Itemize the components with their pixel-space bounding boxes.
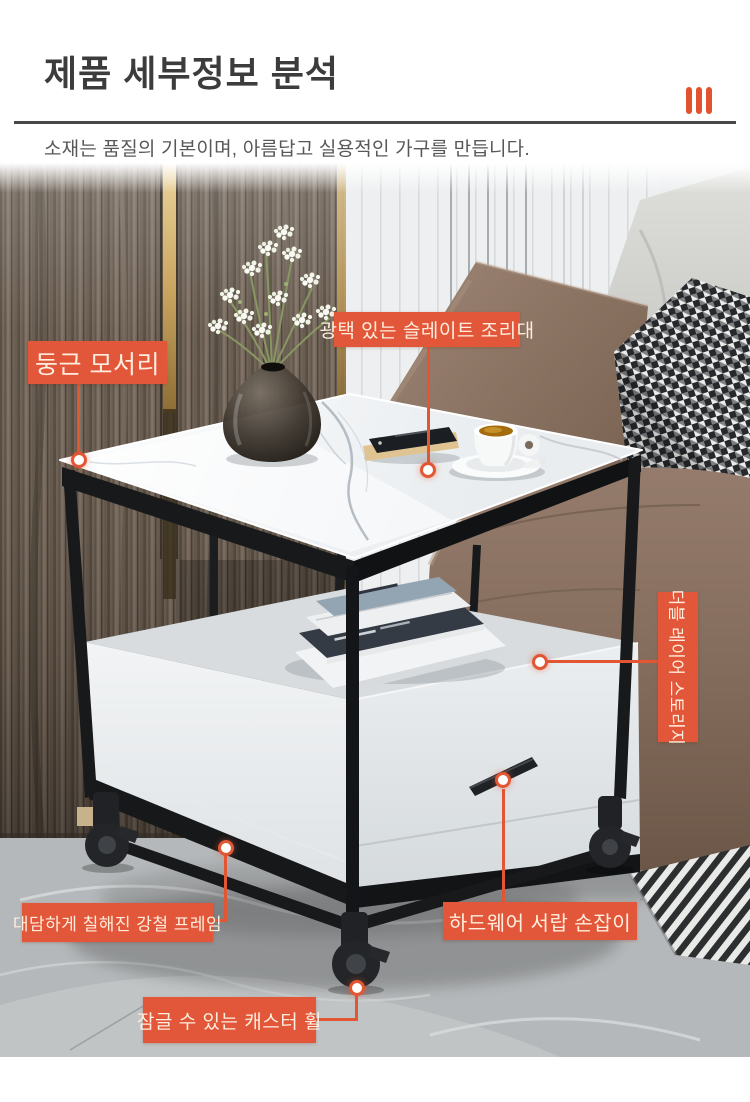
connector-dot-frame (218, 840, 234, 856)
callout-label: 둥근 모서리 (35, 345, 160, 381)
connector-storage (546, 660, 658, 663)
callout-label: 광택 있는 슬레이트 조리대 (319, 316, 534, 343)
callout-label: 더블 레이어 스토리지 (666, 589, 691, 745)
callout-rounded-corner: 둥근 모서리 (28, 341, 167, 384)
callout-painted-steel-frame: 대담하게 칠해진 강철 프레임 (22, 903, 213, 942)
connector-frame-v (224, 854, 227, 922)
connector-slate-top (427, 346, 430, 463)
title-divider (14, 121, 736, 124)
callout-double-layer-storage: 더블 레이어 스토리지 (658, 592, 698, 742)
callout-label: 대담하게 칠해진 강철 프레임 (13, 910, 222, 935)
connector-rounded-corner (77, 383, 80, 454)
connector-dot-rounded-corner (71, 452, 87, 468)
callout-lockable-caster-wheel: 잠글 수 있는 캐스터 휠 (143, 997, 316, 1043)
connector-handle (502, 789, 505, 903)
page-title: 제품 세부정보 분석 (44, 52, 339, 95)
callout-hardware-drawer-handle: 하드웨어 서랍 손잡이 (443, 902, 637, 940)
three-bars-icon (686, 87, 712, 114)
page-subtitle: 소재는 품질의 기본이며, 아름답고 실용적인 가구를 만듭니다. (44, 134, 530, 161)
connector-dot-slate-top (420, 462, 436, 478)
connector-dot-caster (349, 980, 365, 996)
callout-glossy-slate-top: 광택 있는 슬레이트 조리대 (334, 312, 520, 347)
callout-label: 잠글 수 있는 캐스터 휠 (137, 1007, 322, 1034)
connector-dot-storage (532, 654, 548, 670)
product-detail-page: 제품 세부정보 분석 소재는 품질의 기본이며, 아름답고 실용적인 가구를 만… (0, 0, 750, 1102)
callout-label: 하드웨어 서랍 손잡이 (449, 907, 631, 936)
connector-dot-handle (495, 772, 511, 788)
connector-caster-v (355, 994, 358, 1021)
